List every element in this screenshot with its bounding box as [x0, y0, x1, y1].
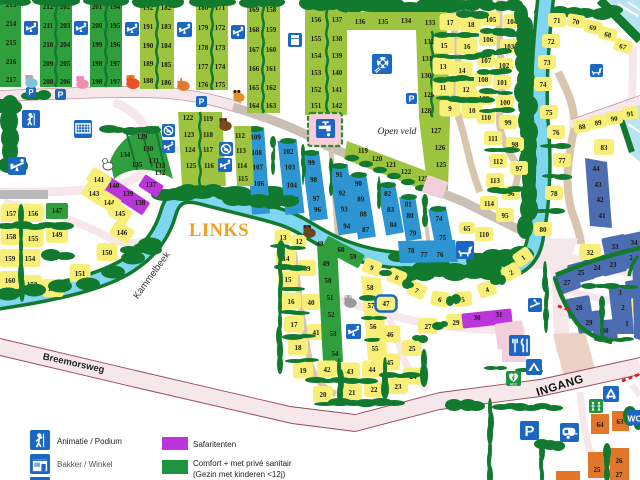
svg-text:59: 59 [350, 253, 358, 261]
svg-text:96: 96 [314, 206, 322, 214]
svg-text:47: 47 [383, 300, 391, 308]
svg-text:AED: AED [510, 382, 518, 386]
svg-text:204: 204 [60, 41, 71, 49]
svg-text:119: 119 [358, 147, 369, 155]
svg-text:152: 152 [311, 86, 322, 94]
svg-text:206: 206 [60, 78, 71, 86]
svg-text:118: 118 [203, 131, 214, 139]
svg-text:214: 214 [6, 20, 17, 28]
svg-text:115: 115 [238, 175, 249, 183]
svg-text:211: 211 [43, 22, 54, 30]
svg-text:22: 22 [371, 386, 379, 394]
svg-text:P: P [28, 88, 33, 97]
svg-text:3: 3 [618, 289, 622, 297]
svg-text:89: 89 [357, 195, 365, 203]
svg-text:147: 147 [52, 207, 63, 215]
svg-text:161: 161 [266, 65, 277, 73]
svg-text:87: 87 [362, 226, 370, 234]
svg-text:21: 21 [349, 389, 357, 397]
svg-text:101: 101 [497, 79, 508, 87]
svg-text:81: 81 [405, 200, 413, 208]
svg-text:159: 159 [5, 255, 16, 263]
svg-text:24: 24 [594, 264, 602, 272]
svg-text:27: 27 [425, 323, 433, 331]
svg-text:197: 197 [110, 78, 121, 86]
svg-text:P: P [525, 423, 535, 440]
svg-text:43: 43 [595, 181, 603, 189]
svg-text:163: 163 [266, 102, 277, 110]
svg-text:122: 122 [183, 114, 194, 122]
svg-text:12: 12 [296, 238, 304, 246]
svg-text:188: 188 [143, 77, 154, 85]
svg-text:(Gezin met kinderen <12j): (Gezin met kinderen <12j) [193, 470, 286, 479]
svg-text:130: 130 [421, 72, 432, 80]
svg-text:91: 91 [336, 171, 344, 179]
svg-text:1: 1 [625, 320, 629, 328]
svg-text:167: 167 [249, 46, 260, 54]
svg-text:13: 13 [440, 63, 448, 71]
svg-text:Animatie / Podium: Animatie / Podium [57, 437, 122, 446]
svg-text:23: 23 [610, 261, 618, 269]
svg-text:151: 151 [311, 102, 322, 110]
svg-text:63: 63 [617, 418, 625, 426]
svg-text:106: 106 [254, 180, 265, 188]
svg-text:LINKS: LINKS [189, 221, 249, 241]
svg-text:172: 172 [215, 24, 226, 32]
svg-text:138: 138 [135, 199, 146, 207]
svg-text:78: 78 [551, 190, 559, 198]
svg-text:210: 210 [43, 41, 54, 49]
svg-text:77: 77 [421, 251, 429, 259]
svg-text:97: 97 [516, 165, 524, 173]
svg-text:15: 15 [441, 42, 449, 50]
svg-text:44: 44 [369, 366, 377, 374]
svg-text:177: 177 [198, 63, 209, 71]
svg-text:95: 95 [502, 212, 510, 220]
svg-text:16: 16 [288, 298, 296, 306]
svg-text:151: 151 [75, 270, 86, 278]
svg-text:136: 136 [355, 18, 366, 26]
svg-text:130: 130 [143, 145, 154, 153]
svg-text:56: 56 [370, 323, 378, 331]
svg-text:143: 143 [89, 190, 100, 198]
svg-text:28: 28 [576, 304, 584, 312]
svg-text:184: 184 [161, 42, 172, 50]
svg-text:198: 198 [92, 78, 103, 86]
svg-text:141: 141 [332, 86, 343, 94]
svg-text:124: 124 [185, 146, 196, 154]
svg-text:P: P [58, 90, 64, 100]
svg-text:142: 142 [332, 102, 343, 110]
svg-text:106: 106 [483, 36, 494, 44]
svg-text:132: 132 [424, 38, 435, 46]
svg-text:9: 9 [448, 105, 452, 113]
svg-text:197: 197 [110, 60, 121, 68]
svg-text:33: 33 [612, 243, 620, 251]
svg-text:83: 83 [387, 206, 395, 214]
svg-text:189: 189 [143, 60, 154, 68]
svg-text:45: 45 [387, 359, 395, 367]
svg-text:54: 54 [332, 350, 340, 358]
svg-text:133: 133 [425, 19, 436, 27]
svg-text:173: 173 [215, 44, 226, 52]
svg-text:121: 121 [386, 161, 397, 169]
svg-text:154: 154 [25, 255, 36, 263]
svg-text:131: 131 [422, 55, 433, 63]
svg-text:139: 139 [332, 52, 343, 60]
svg-text:WC: WC [627, 413, 640, 423]
svg-text:196: 196 [110, 41, 121, 49]
svg-text:2: 2 [621, 304, 625, 312]
svg-text:141: 141 [94, 176, 105, 184]
svg-text:200: 200 [92, 22, 103, 30]
svg-text:15: 15 [285, 276, 293, 284]
svg-text:99: 99 [308, 159, 316, 167]
svg-text:46: 46 [387, 331, 395, 339]
svg-text:126: 126 [435, 144, 446, 152]
svg-text:134: 134 [401, 17, 412, 25]
svg-text:125: 125 [186, 162, 197, 170]
svg-text:80: 80 [540, 226, 548, 234]
svg-text:155: 155 [28, 235, 39, 243]
svg-text:140: 140 [109, 182, 120, 190]
svg-text:140: 140 [332, 69, 343, 77]
svg-text:155: 155 [311, 35, 322, 43]
svg-text:51: 51 [327, 294, 335, 302]
svg-text:135: 135 [132, 161, 143, 169]
svg-text:42: 42 [324, 366, 332, 374]
svg-text:104: 104 [287, 181, 298, 189]
svg-text:123: 123 [184, 131, 195, 139]
svg-text:150: 150 [102, 249, 113, 257]
svg-text:40: 40 [308, 299, 316, 307]
svg-text:25: 25 [578, 269, 586, 277]
svg-text:Comfort + met privé sanitair: Comfort + met privé sanitair [193, 459, 292, 468]
svg-text:25: 25 [409, 345, 417, 353]
svg-text:153: 153 [311, 69, 322, 77]
svg-text:103: 103 [285, 164, 296, 172]
svg-text:11: 11 [440, 84, 447, 92]
svg-text:146: 146 [117, 229, 128, 237]
svg-text:55: 55 [372, 345, 380, 353]
svg-text:18: 18 [468, 21, 476, 29]
svg-text:158: 158 [6, 233, 17, 241]
svg-text:100: 100 [500, 99, 511, 107]
svg-text:145: 145 [115, 210, 126, 218]
svg-text:12: 12 [463, 86, 471, 94]
svg-text:19: 19 [300, 367, 308, 375]
svg-text:74: 74 [540, 81, 548, 89]
svg-text:113: 113 [236, 147, 247, 155]
svg-text:156: 156 [28, 210, 39, 218]
svg-text:64: 64 [597, 421, 605, 429]
svg-text:25: 25 [594, 466, 602, 474]
svg-text:74: 74 [435, 215, 443, 223]
svg-text:178: 178 [198, 44, 209, 52]
svg-text:159: 159 [266, 26, 277, 34]
svg-text:Safaritenten: Safaritenten [193, 440, 236, 449]
svg-text:111: 111 [488, 135, 498, 143]
svg-text:84: 84 [390, 221, 398, 229]
svg-text:77: 77 [559, 157, 567, 165]
svg-text:83: 83 [601, 144, 609, 152]
svg-text:72: 72 [548, 38, 556, 46]
svg-text:17: 17 [291, 321, 299, 329]
svg-text:168: 168 [249, 26, 260, 34]
svg-text:216: 216 [6, 58, 17, 66]
svg-text:119: 119 [203, 115, 214, 123]
svg-text:57: 57 [368, 302, 376, 310]
svg-text:132: 132 [155, 169, 166, 177]
svg-text:117: 117 [203, 146, 214, 154]
svg-text:P: P [409, 94, 415, 104]
svg-text:52: 52 [328, 311, 336, 319]
svg-text:58: 58 [367, 284, 375, 292]
svg-text:20: 20 [320, 391, 328, 399]
svg-text:110: 110 [479, 231, 490, 239]
svg-text:42: 42 [597, 196, 605, 204]
svg-text:27: 27 [564, 279, 572, 287]
svg-text:160: 160 [266, 46, 277, 54]
svg-text:76: 76 [437, 251, 445, 259]
svg-text:14: 14 [459, 67, 467, 75]
svg-text:65: 65 [464, 225, 472, 233]
svg-text:27: 27 [616, 471, 624, 479]
svg-text:82: 82 [384, 190, 392, 198]
svg-text:41: 41 [599, 212, 607, 220]
svg-text:120: 120 [372, 155, 383, 163]
svg-text:114: 114 [484, 200, 495, 208]
svg-text:108: 108 [251, 149, 262, 157]
svg-text:94: 94 [343, 223, 351, 231]
svg-text:79: 79 [409, 230, 417, 238]
svg-text:116: 116 [204, 162, 215, 170]
svg-text:Open veld: Open veld [378, 127, 417, 137]
svg-text:209: 209 [43, 60, 54, 68]
svg-text:179: 179 [198, 24, 209, 32]
svg-text:158: 158 [266, 6, 277, 14]
svg-text:10: 10 [469, 107, 477, 115]
svg-text:156: 156 [311, 16, 322, 24]
svg-text:176: 176 [198, 81, 209, 89]
svg-text:199: 199 [92, 41, 103, 49]
svg-text:139: 139 [123, 190, 134, 198]
svg-text:50: 50 [325, 277, 333, 285]
svg-text:78: 78 [408, 247, 416, 255]
svg-text:107: 107 [252, 164, 263, 172]
svg-text:205: 205 [60, 60, 71, 68]
svg-text:166: 166 [249, 65, 260, 73]
svg-text:137: 137 [146, 181, 157, 189]
svg-text:18: 18 [295, 344, 303, 352]
svg-text:165: 165 [249, 84, 260, 92]
svg-text:49: 49 [323, 260, 331, 268]
svg-text:195: 195 [110, 22, 121, 30]
svg-text:138: 138 [332, 35, 343, 43]
svg-text:191: 191 [143, 23, 154, 31]
svg-text:107: 107 [481, 57, 492, 65]
svg-text:43: 43 [347, 368, 355, 376]
svg-text:16: 16 [464, 43, 472, 51]
svg-text:114: 114 [237, 162, 248, 170]
svg-text:109: 109 [250, 134, 261, 142]
svg-text:76: 76 [553, 129, 561, 137]
svg-text:60: 60 [338, 246, 346, 254]
svg-text:175: 175 [215, 81, 226, 89]
svg-text:108: 108 [478, 76, 489, 84]
svg-text:110: 110 [481, 114, 492, 122]
svg-text:198: 198 [92, 60, 103, 68]
svg-text:29: 29 [453, 319, 461, 327]
svg-text:134: 134 [120, 151, 131, 159]
svg-text:129: 129 [137, 133, 148, 141]
svg-text:23: 23 [395, 383, 403, 391]
svg-text:17: 17 [447, 19, 455, 27]
svg-text:162: 162 [266, 84, 277, 92]
svg-text:31: 31 [496, 311, 504, 319]
svg-text:137: 137 [332, 16, 343, 24]
svg-text:186: 186 [161, 79, 172, 87]
svg-text:34: 34 [631, 239, 639, 247]
svg-text:174: 174 [215, 63, 226, 71]
svg-text:128: 128 [421, 107, 432, 115]
svg-text:122: 122 [401, 168, 412, 176]
svg-text:30: 30 [474, 314, 482, 322]
svg-text:29: 29 [586, 319, 594, 327]
svg-text:164: 164 [249, 102, 260, 110]
svg-text:149: 149 [52, 231, 63, 239]
svg-text:53: 53 [330, 330, 338, 338]
svg-text:71: 71 [554, 17, 562, 25]
svg-text:80: 80 [407, 212, 415, 220]
svg-text:135: 135 [378, 18, 389, 26]
svg-text:99: 99 [505, 119, 513, 127]
svg-text:75: 75 [546, 109, 554, 117]
svg-text:190: 190 [143, 42, 154, 50]
svg-text:26: 26 [616, 457, 624, 465]
svg-text:32: 32 [587, 249, 595, 257]
svg-text:90: 90 [355, 180, 363, 188]
svg-text:154: 154 [311, 52, 322, 60]
svg-text:44: 44 [593, 165, 601, 173]
svg-text:160: 160 [5, 277, 16, 285]
svg-text:93: 93 [341, 205, 349, 213]
svg-text:113: 113 [490, 177, 501, 185]
svg-text:185: 185 [161, 61, 172, 69]
svg-text:102: 102 [283, 148, 294, 156]
svg-text:112: 112 [235, 132, 246, 140]
svg-text:215: 215 [6, 39, 17, 47]
svg-text:92: 92 [339, 190, 347, 198]
svg-text:125: 125 [436, 161, 447, 169]
svg-text:97: 97 [313, 195, 321, 203]
svg-text:157: 157 [6, 210, 17, 218]
svg-text:183: 183 [161, 23, 172, 31]
svg-text:203: 203 [60, 22, 71, 30]
svg-text:98: 98 [310, 176, 318, 184]
svg-text:112: 112 [493, 158, 504, 166]
svg-text:73: 73 [544, 59, 552, 67]
svg-text:217: 217 [6, 76, 17, 84]
svg-text:Bakker / Winkel: Bakker / Winkel [57, 460, 113, 469]
svg-text:88: 88 [360, 211, 368, 219]
svg-text:127: 127 [431, 127, 442, 135]
svg-text:P: P [199, 97, 205, 107]
svg-text:208: 208 [43, 78, 54, 86]
